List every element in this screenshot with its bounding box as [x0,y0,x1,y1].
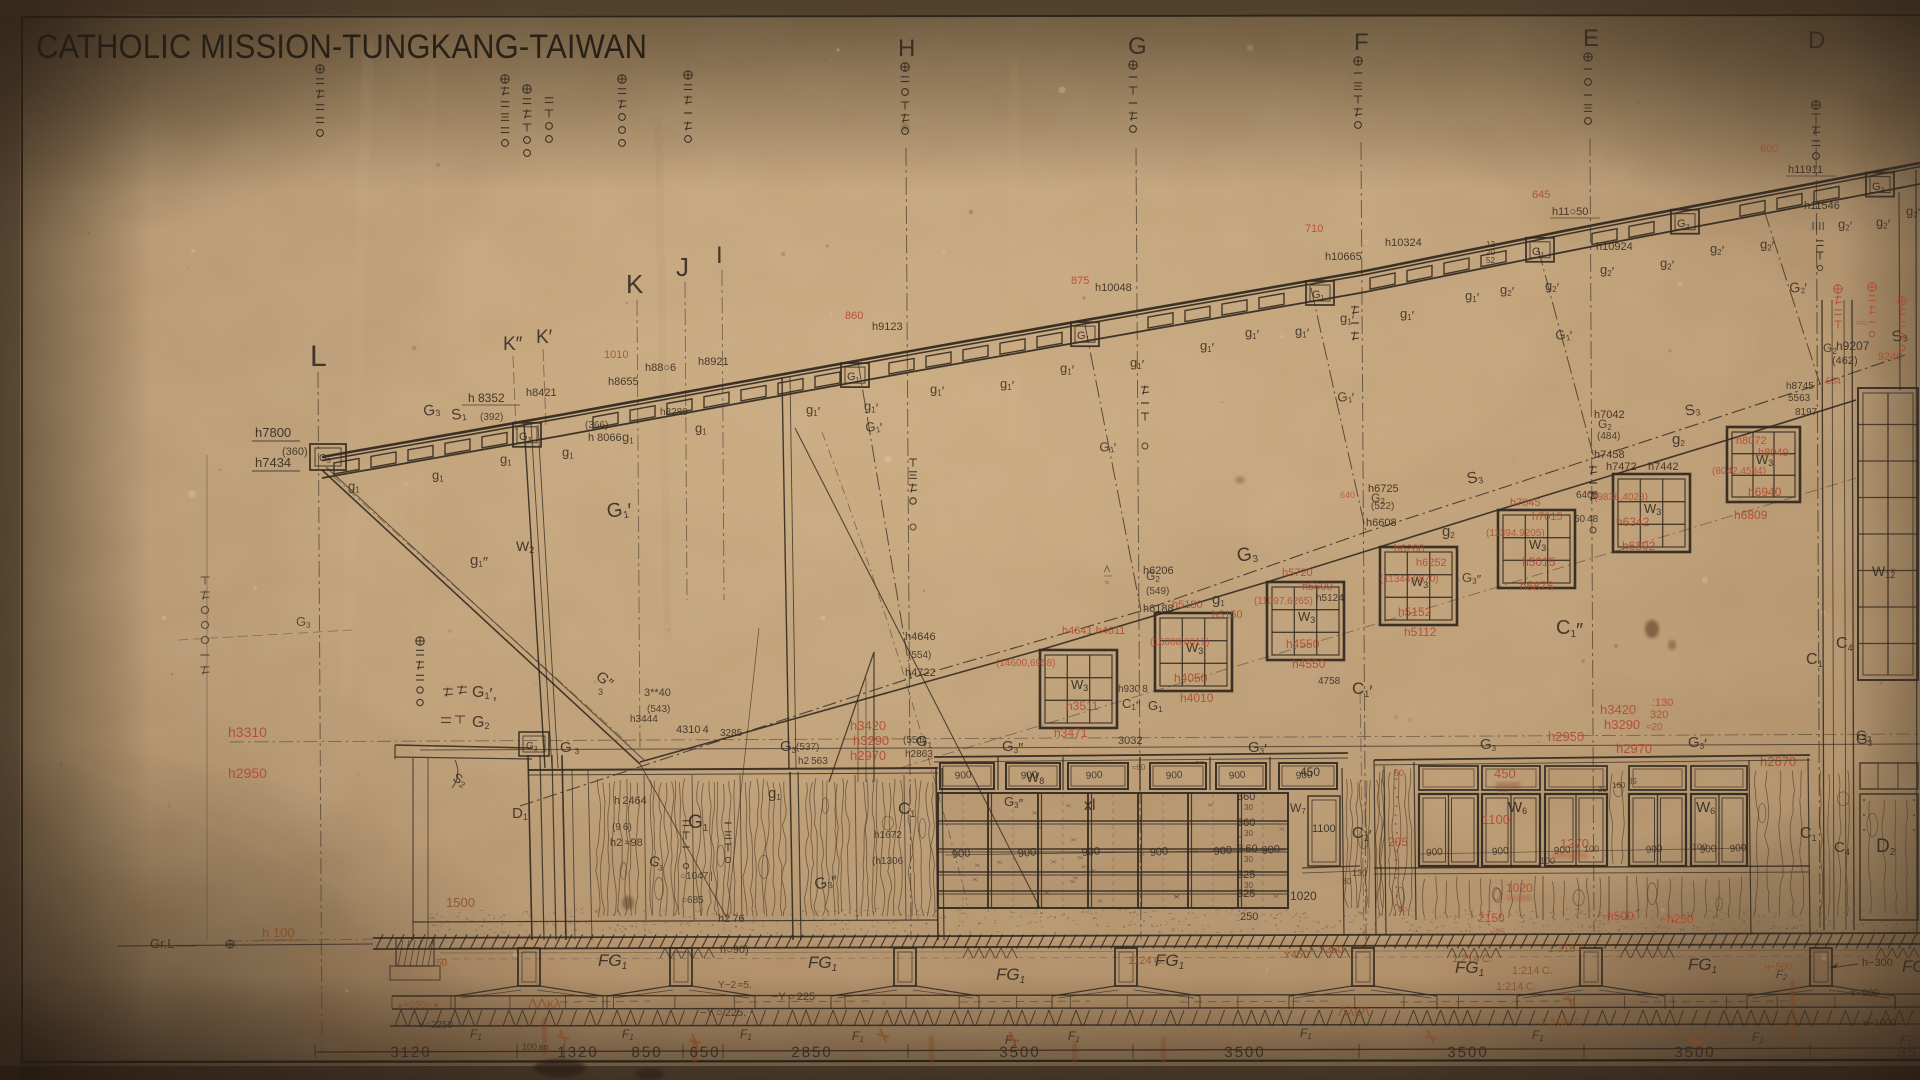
svg-text:900: 900 [1492,846,1510,858]
svg-text:н−500: н−500 [1764,962,1792,973]
svg-text:h7800: h7800 [255,425,291,440]
svg-text:h2 76: h2 76 [718,913,745,925]
svg-text:900: 900 [954,770,972,782]
svg-text:h 8066: h 8066 [588,432,622,444]
svg-text:645: 645 [1532,189,1550,201]
svg-text:h3310: h3310 [228,724,267,740]
svg-text:h6725: h6725 [1368,483,1399,495]
svg-text:900: 900 [1017,846,1036,860]
svg-text:h88○6: h88○6 [645,362,676,374]
svg-text:h8049: h8049 [1758,447,1789,459]
svg-text:1:214 C.: 1:214 C. [1512,965,1553,977]
svg-text:900: 900 [1165,770,1183,782]
svg-text:ɤ−900: ɤ−900 [1850,988,1879,999]
svg-text:h6608: h6608 [1366,517,1397,529]
svg-text:h6252: h6252 [1416,557,1447,569]
svg-text:30: 30 [1244,881,1253,890]
svg-text:(522): (522) [1371,501,1394,512]
svg-text:1320: 1320 [557,1044,599,1061]
svg-text:900: 900 [1261,843,1280,857]
svg-text:h3290: h3290 [853,733,889,748]
svg-text:h8921: h8921 [698,356,729,368]
svg-text:(462): (462) [1832,355,1858,367]
svg-text:3120: 3120 [390,1044,432,1061]
svg-text:60 48: 60 48 [1574,514,1599,525]
svg-text:≈≈: ≈≈ [1498,788,1509,799]
svg-text:h7458: h7458 [1594,449,1625,461]
svg-text:30: 30 [1244,803,1253,812]
svg-text:3: 3 [598,687,603,697]
svg-text:900: 900 [1149,845,1168,859]
svg-text:1100: 1100 [1482,812,1510,827]
svg-text:J: J [676,252,689,282]
svg-text:h3511: h3511 [1066,699,1099,713]
svg-text:1270: 1270 [1560,836,1589,851]
svg-text:450: 450 [1300,765,1320,779]
svg-text:h10924: h10924 [1596,241,1633,253]
svg-text:h10324: h10324 [1385,237,1422,249]
svg-text:h6288: h6288 [1394,543,1425,555]
svg-text:h9207: h9207 [1836,339,1870,353]
svg-text:≈250≈: ≈250≈ [404,1000,432,1011]
svg-text:1:318. C: 1:318. C [1540,1017,1581,1029]
svg-text:I: I [716,242,723,269]
svg-text:450: 450 [1494,766,1516,781]
svg-text::130: :130 [1652,697,1673,709]
svg-text:900: 900 [1426,847,1444,859]
svg-text:h4641 h4611: h4641 h4611 [1062,625,1125,637]
svg-text:900: 900 [1228,770,1246,782]
svg-text:3032: 3032 [1118,735,1142,747]
svg-text:h7015: h7015 [1532,511,1563,523]
svg-text:(484): (484) [1597,431,1620,442]
svg-text:h 2464: h 2464 [614,795,647,807]
svg-text:h8280: h8280 [660,407,688,418]
svg-text:30: 30 [1244,855,1253,864]
svg-text:h4050: h4050 [1174,671,1208,685]
svg-text:h6940: h6940 [1748,485,1782,499]
svg-text:600: 600 [1760,143,1778,155]
svg-text:h5124: h5124 [1316,593,1344,604]
svg-text:h8421: h8421 [526,387,557,399]
svg-text:1124 C.: 1124 C. [1128,955,1165,967]
svg-text:h7042: h7042 [1594,409,1625,421]
svg-text:K′: K′ [536,327,553,348]
svg-text:100 во: 100 во [522,1042,549,1052]
svg-text:900: 900 [951,847,970,861]
svg-text:h7045: h7045 [1510,497,1541,509]
svg-text:640: 640 [1340,490,1355,500]
svg-text:1:214 C.: 1:214 C. [1452,953,1493,965]
svg-text:860: 860 [845,310,863,322]
svg-text:h4722: h4722 [905,667,936,679]
svg-text:h3420: h3420 [850,718,886,733]
svg-text:−−: −− [1195,757,1205,766]
svg-text:(549): (549) [1146,586,1169,597]
svg-text:(11394,9205): (11394,9205) [1486,528,1545,539]
svg-text:8197: 8197 [1795,407,1818,418]
svg-text:3500: 3500 [1447,1044,1489,1061]
svg-text:(8042,4584): (8042,4584) [1712,466,1766,477]
svg-text:Λ: Λ [1104,564,1110,574]
svg-text:100: 100 [1692,842,1707,852]
svg-text:(554): (554) [908,650,931,661]
svg-text:ɤ−1000: ɤ−1000 [1862,1018,1897,1029]
svg-text:−Y ○ 225.: −Y ○ 225. [700,1007,746,1019]
svg-text:650: 650 [689,1044,720,1061]
svg-text:h9123: h9123 [872,321,903,333]
svg-text:≈25: ≈25 [1490,927,1505,937]
svg-text:3**40: 3**40 [644,687,671,699]
svg-text:h5180: h5180 [1172,599,1203,611]
svg-text:○1047 |: ○1047 | [680,871,713,882]
svg-text:(9836,4023): (9836,4023) [1594,492,1648,503]
svg-text:554: 554 [1826,376,1841,386]
svg-text:h5875: h5875 [1520,579,1554,593]
svg-text:h5152: h5152 [1398,605,1432,619]
svg-text:5563: 5563 [1788,393,1811,404]
svg-text:h3420: h3420 [1600,702,1636,717]
svg-text:h7442: h7442 [1648,461,1679,473]
svg-text:1010: 1010 [604,349,628,361]
svg-text:h3290: h3290 [1604,717,1640,732]
svg-text:h2950: h2950 [228,765,267,781]
svg-text:h8745: h8745 [1786,381,1814,392]
svg-text:h4550: h4550 [1286,637,1320,651]
svg-text:(366): (366) [585,420,608,431]
svg-text:h7472: h7472 [1606,461,1637,473]
svg-text:FG1: FG1 [1902,957,1920,978]
svg-text:4758: 4758 [1318,676,1341,687]
svg-text:h4010: h4010 [1180,691,1214,705]
svg-text:h6809: h6809 [1734,508,1768,522]
svg-text:3285: 3285 [720,728,743,739]
svg-text:205: 205 [1388,835,1408,849]
svg-text:h6206: h6206 [1143,565,1174,577]
svg-text:Gr.L: Gr.L [150,936,175,951]
svg-text:−Y ○ 225: −Y ○ 225 [772,991,815,1003]
svg-text:(14600,6958): (14600,6958) [996,658,1056,669]
svg-text:h10665: h10665 [1325,251,1362,263]
svg-text:≈60: ≈60 [1132,763,1146,772]
svg-text:h5720: h5720 [1282,567,1313,579]
svg-text:30: 30 [1244,829,1253,838]
svg-text:h 100: h 100 [262,925,295,940]
svg-text:(392): (392) [480,412,503,423]
svg-text:h2 ≈98: h2 ≈98 [610,837,643,849]
svg-text:≈20: ≈20 [1646,722,1663,733]
svg-text:1020: 1020 [1506,881,1533,895]
svg-text:(9 6): (9 6) [612,822,632,833]
svg-text:360: 360 [1237,817,1255,829]
svg-text:F: F [1354,29,1369,56]
svg-text:130: 130 [1352,868,1367,878]
svg-text:≈≈: ≈≈ [1856,318,1867,329]
svg-text:52: 52 [1486,256,1495,265]
svg-text:50: 50 [436,958,448,969]
svg-text:900: 900 [1213,844,1232,858]
svg-text:325: 325 [1237,869,1255,881]
svg-text:h5112: h5112 [1404,625,1437,639]
svg-text:C1″: C1″ [1556,617,1583,642]
svg-text:h6342: h6342 [1616,515,1650,529]
svg-text:h2970: h2970 [1616,741,1652,756]
svg-text:3500: 3500 [1224,1044,1266,1061]
svg-text:H: H [898,35,915,62]
svg-text:K″: K″ [503,334,523,355]
svg-text:h2970: h2970 [850,748,886,763]
svg-text:h2 563: h2 563 [798,756,828,767]
svg-text:710: 710 [1305,223,1323,235]
svg-text:h11○50: h11○50 [1552,206,1588,218]
svg-text:h5150: h5150 [1212,609,1243,621]
svg-text:3500: 3500 [1674,1044,1716,1061]
svg-text:1:214 C.: 1:214 C. [1496,981,1537,993]
svg-text:≈: ≈ [1105,578,1110,587]
svg-text:1:316 ƒ.: 1:316 ƒ. [1548,943,1587,955]
svg-text:35: 35 [1628,777,1637,786]
svg-text:L: L [310,340,327,373]
svg-text:ɤ450: ɤ450 [1284,949,1309,961]
svg-text:h−300: h−300 [1862,957,1893,969]
svg-text:9240: 9240 [1878,351,1902,363]
svg-text:(537): (537) [796,742,819,753]
svg-text:xl: xl [1084,797,1096,814]
svg-text:K: K [626,269,644,299]
svg-text:2150: 2150 [1478,911,1505,925]
svg-text:h4550: h4550 [1292,657,1326,671]
svg-text:ΛΛκλ: ΛΛκλ [528,995,561,1011]
svg-text:G3″: G3″ [1004,794,1024,811]
svg-text:h11546: h11546 [1804,200,1840,212]
svg-text:900: 900 [1085,770,1103,782]
svg-text:Y−2 ≈5.: Y−2 ≈5. [718,980,752,991]
svg-text:(h1306: (h1306 [872,856,904,867]
svg-text:○685: ○685 [681,895,704,906]
svg-text:h4646: h4646 [905,631,936,643]
svg-text:1100: 1100 [1312,823,1336,835]
svg-text:(11344,0870): (11344,0870) [1380,574,1439,585]
svg-text:320: 320 [1650,709,1668,721]
svg-text:Y350: Y350 [1318,944,1344,956]
svg-text:160: 160 [1612,781,1626,790]
svg-text:h6302: h6302 [1622,539,1656,553]
svg-text:h8655: h8655 [608,376,639,388]
svg-text:C1′: C1′ [1352,679,1372,701]
svg-text:G: G [1128,33,1147,60]
svg-text:h2863: h2863 [905,749,933,760]
svg-text:h 8352: h 8352 [468,391,505,405]
svg-text:h11911: h11911 [1788,164,1823,176]
svg-text:g2′: g2′ [1906,204,1920,221]
svg-text:h10048: h10048 [1095,282,1132,294]
svg-text:CATHOLIC MISSION-TUNGKANG-TAIW: CATHOLIC MISSION-TUNGKANG-TAIWAN [36,27,648,66]
svg-text:h5015: h5015 [1522,555,1556,569]
svg-text:1020: 1020 [1290,889,1317,903]
svg-text:850: 850 [631,1044,662,1061]
svg-text:250: 250 [1240,911,1258,923]
svg-text:h2950: h2950 [1548,729,1584,744]
svg-text:900: 900 [1645,844,1663,856]
svg-text:h930 8: h930 8 [1118,684,1148,695]
svg-text:h5690: h5690 [1302,581,1333,593]
svg-text:G3″: G3″ [1002,738,1024,757]
svg-text:ΛλкΛ: ΛλкΛ [1338,1003,1370,1019]
svg-text:35: 35 [1598,785,1607,794]
svg-text:~h250: ~h250 [1660,912,1694,926]
svg-text:1500: 1500 [446,895,475,910]
svg-text:4310 4: 4310 4 [676,724,709,736]
svg-text:875: 875 [1071,275,1089,287]
svg-text:G3″: G3″ [1462,570,1482,587]
svg-text:E: E [1583,25,1599,52]
svg-text:2850: 2850 [791,1044,833,1061]
svg-text:Y○2250: Y○2250 [418,1020,453,1031]
svg-text:G3′: G3′ [1688,734,1707,753]
svg-text:(11097,6265): (11097,6265) [1254,596,1313,607]
svg-text:(16008,6619): (16008,6619) [1150,637,1210,648]
svg-text:35: 35 [1898,1044,1919,1061]
svg-text:h1672: h1672 [874,830,902,841]
svg-text:h7434: h7434 [255,455,291,470]
svg-text:3 60: 3 60 [1237,843,1258,855]
svg-text:360: 360 [1237,791,1255,803]
svg-text:G3′: G3′ [1248,739,1267,758]
svg-text:h8072: h8072 [1736,435,1767,447]
svg-text:900: 900 [1081,845,1100,859]
svg-text:900: 900 [1729,843,1747,855]
svg-text:3500: 3500 [999,1044,1041,1061]
svg-text:h3444: h3444 [630,714,658,725]
svg-text:D: D [1808,27,1825,54]
